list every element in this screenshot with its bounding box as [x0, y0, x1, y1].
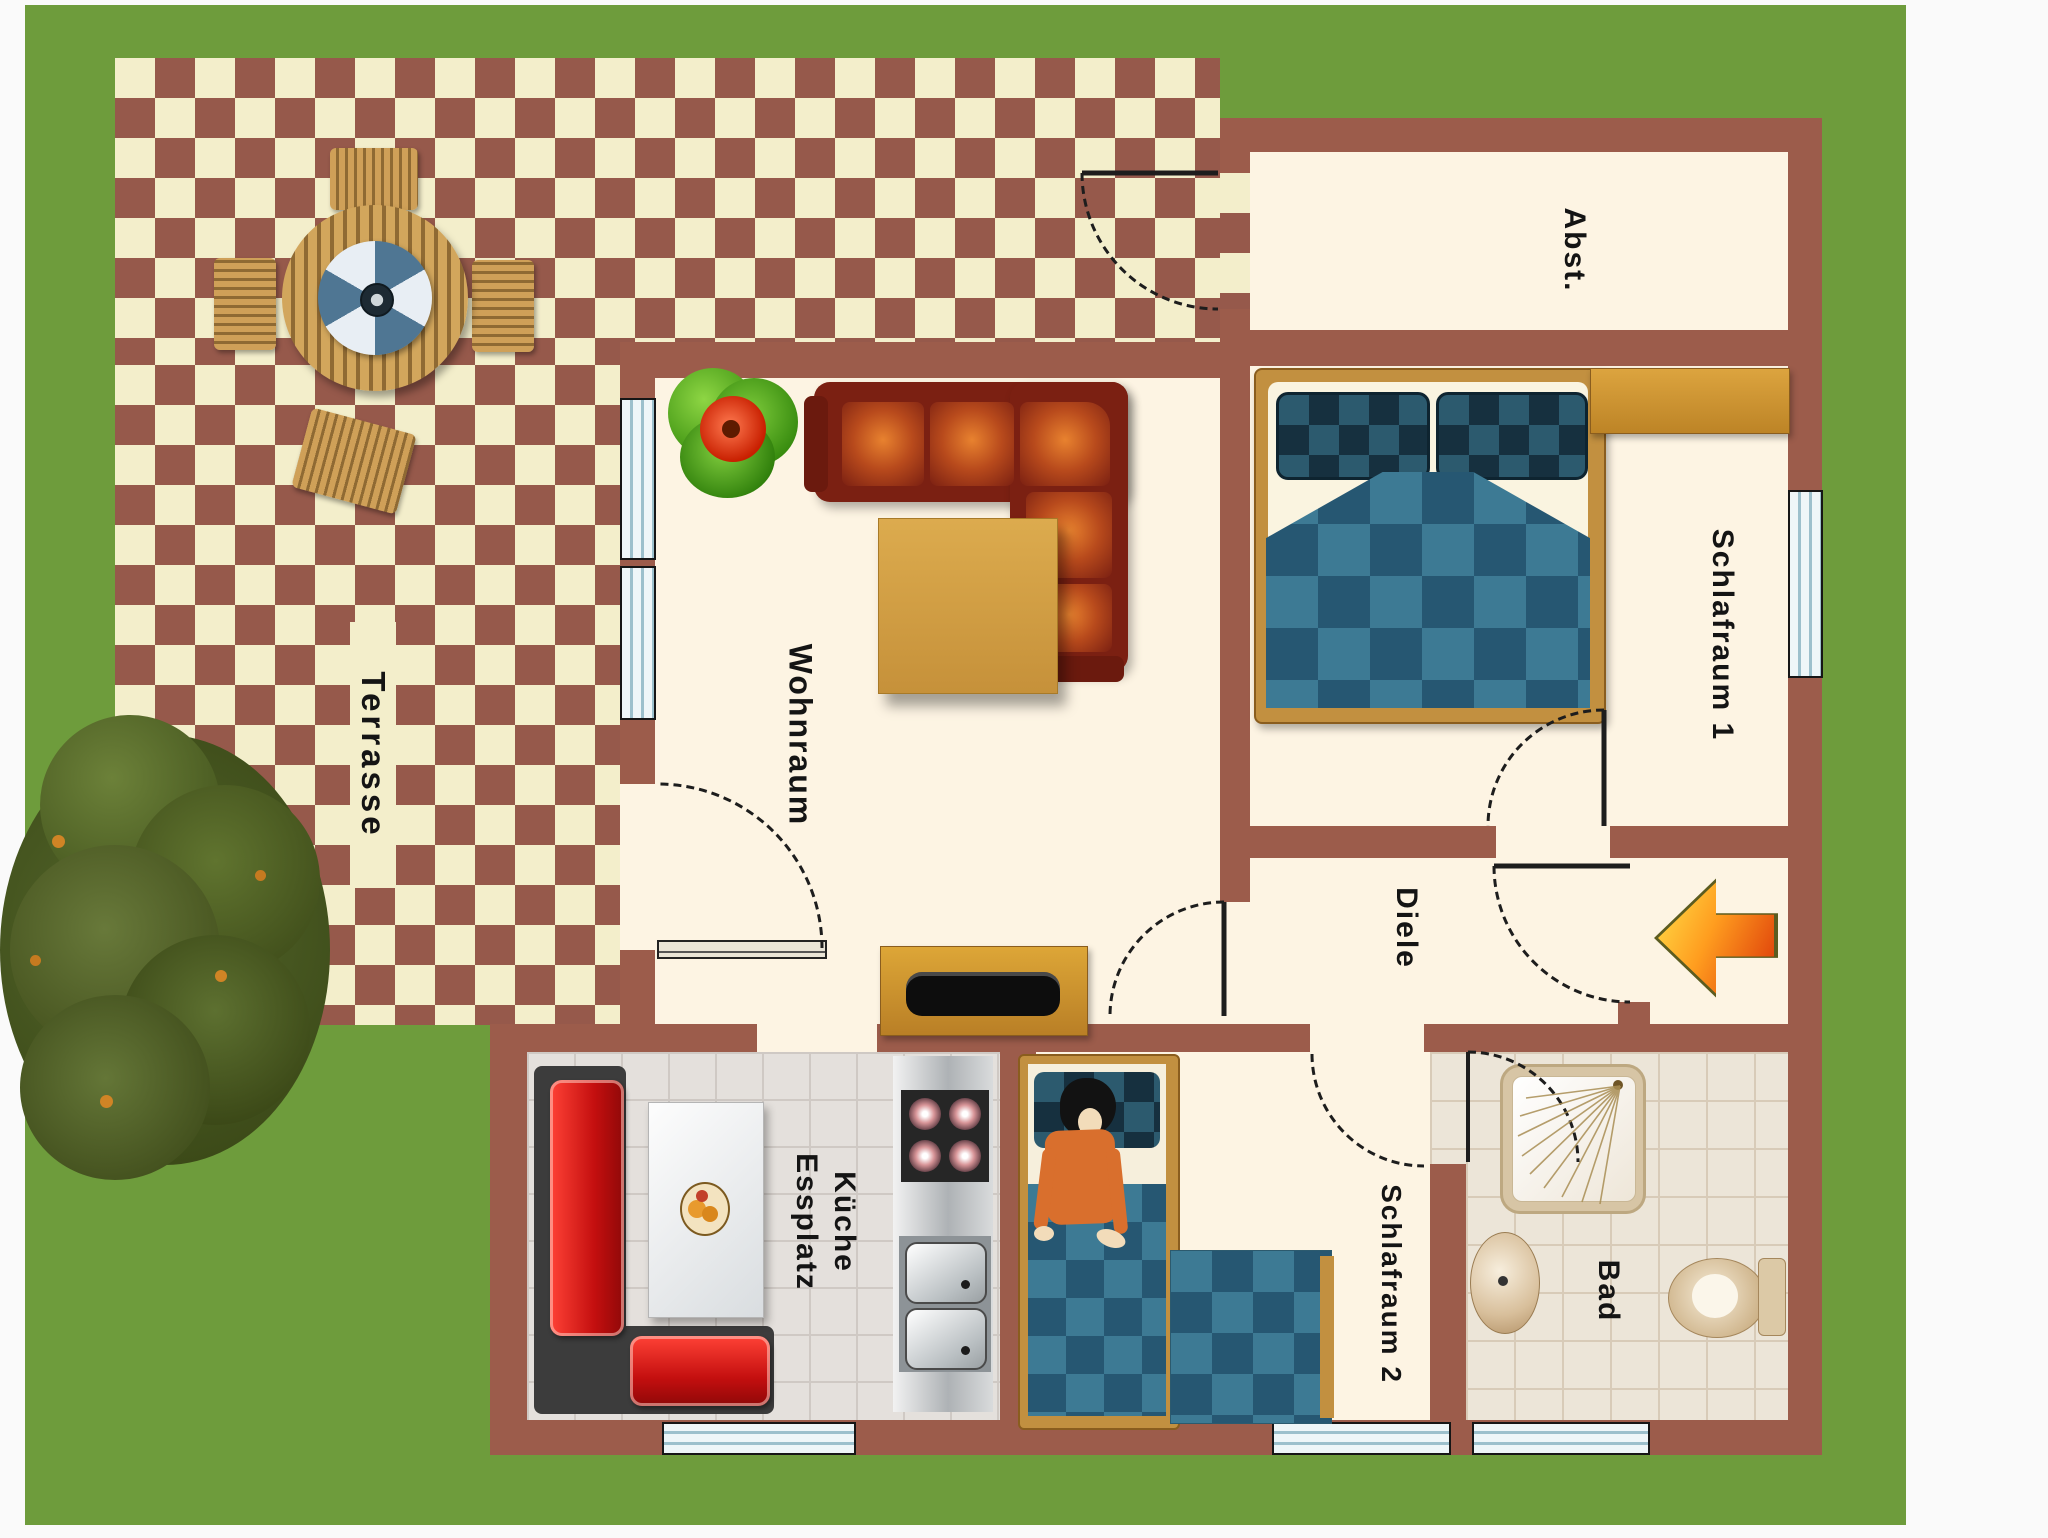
room-label-living: Wohnraum — [782, 644, 819, 827]
doorway — [620, 784, 655, 950]
tree-fruit — [255, 870, 266, 881]
terrace-paving — [115, 58, 1220, 365]
garden-chair — [214, 258, 276, 350]
room-label-hallway: Diele — [1389, 887, 1423, 969]
window — [1272, 1422, 1451, 1455]
wall — [1618, 1002, 1650, 1028]
burner — [909, 1098, 941, 1130]
parasol-hub — [360, 283, 394, 317]
doorway — [1220, 173, 1250, 309]
tree — [0, 715, 350, 1185]
room-label-bedroom2: Schlafraum 2 — [1375, 1184, 1407, 1384]
room-label-terrace: Terrasse — [354, 671, 392, 838]
bed-pillow — [1276, 392, 1430, 480]
shower-tray — [1512, 1076, 1636, 1202]
wall — [1220, 118, 1822, 152]
coffee-table — [878, 518, 1058, 694]
burner — [909, 1140, 941, 1172]
window — [1472, 1422, 1650, 1455]
doorway — [1310, 1024, 1424, 1052]
stove — [901, 1090, 989, 1182]
doorway — [1430, 1052, 1466, 1164]
kitchen-sink — [899, 1236, 991, 1372]
bench-cushion — [550, 1080, 624, 1336]
person-hand — [1034, 1226, 1054, 1241]
sink-basin — [905, 1242, 987, 1304]
fruit — [696, 1190, 708, 1202]
wall — [490, 1024, 757, 1052]
toilet-lid — [1692, 1274, 1738, 1318]
shower — [1500, 1064, 1646, 1214]
plant-flower-center — [722, 420, 740, 438]
wall — [1246, 826, 1496, 858]
wall — [490, 1024, 527, 1455]
tree-fruit — [215, 970, 227, 982]
room-label-bathroom: Bad — [1591, 1260, 1625, 1323]
burner — [949, 1098, 981, 1130]
wall — [1788, 118, 1822, 1455]
doorway — [1618, 866, 1650, 1002]
burner — [949, 1140, 981, 1172]
person-torso — [1044, 1129, 1117, 1225]
doorway — [1496, 826, 1610, 858]
wardrobe — [1590, 368, 1790, 434]
garden-chair — [472, 260, 534, 352]
sofa-cushion — [842, 402, 924, 486]
tree-fruit — [52, 835, 65, 848]
terrace-door-leaf — [657, 940, 827, 959]
futon-frame — [1320, 1256, 1334, 1418]
window — [620, 566, 656, 720]
wall — [1220, 362, 1250, 902]
sofa-cushion — [930, 402, 1014, 486]
faucet — [961, 1280, 970, 1289]
window — [662, 1422, 856, 1455]
houseplant — [668, 368, 798, 498]
window — [1788, 490, 1823, 678]
floor-plan: Terrasse Wohnraum Abst. Schlafraum 1 Die… — [0, 0, 2048, 1538]
wall — [1220, 152, 1250, 173]
sofa-armrest — [804, 396, 828, 492]
tv-icon — [906, 972, 1060, 1016]
room-label-storage: Abst. — [1557, 208, 1591, 293]
doorway — [757, 1024, 877, 1052]
wall — [1610, 826, 1788, 858]
garden-chair — [330, 148, 418, 210]
window — [620, 398, 656, 560]
room-label-kitchen-line1: Küche — [825, 1153, 863, 1291]
futon — [1170, 1250, 1332, 1424]
bench-cushion — [630, 1336, 770, 1406]
bed-pillow — [1436, 392, 1588, 480]
shower-head — [1613, 1080, 1623, 1090]
basin-faucet — [1498, 1276, 1508, 1286]
faucet — [961, 1346, 970, 1355]
toilet-tank — [1758, 1258, 1786, 1336]
tree-fruit — [30, 955, 41, 966]
room-label-kitchen-line2: Essplatz — [787, 1153, 825, 1291]
wall — [1245, 330, 1788, 366]
room-label-kitchen: Küche Essplatz — [787, 1153, 863, 1291]
wall — [1424, 1024, 1788, 1052]
sink-basin — [905, 1308, 987, 1370]
tree-foliage — [20, 995, 210, 1180]
room-label-bedroom1: Schlafraum 1 — [1705, 529, 1739, 741]
fruit-bowl — [680, 1182, 730, 1236]
tree-fruit — [100, 1095, 113, 1108]
sofa-cushion — [1020, 402, 1110, 486]
fruit — [702, 1206, 718, 1222]
